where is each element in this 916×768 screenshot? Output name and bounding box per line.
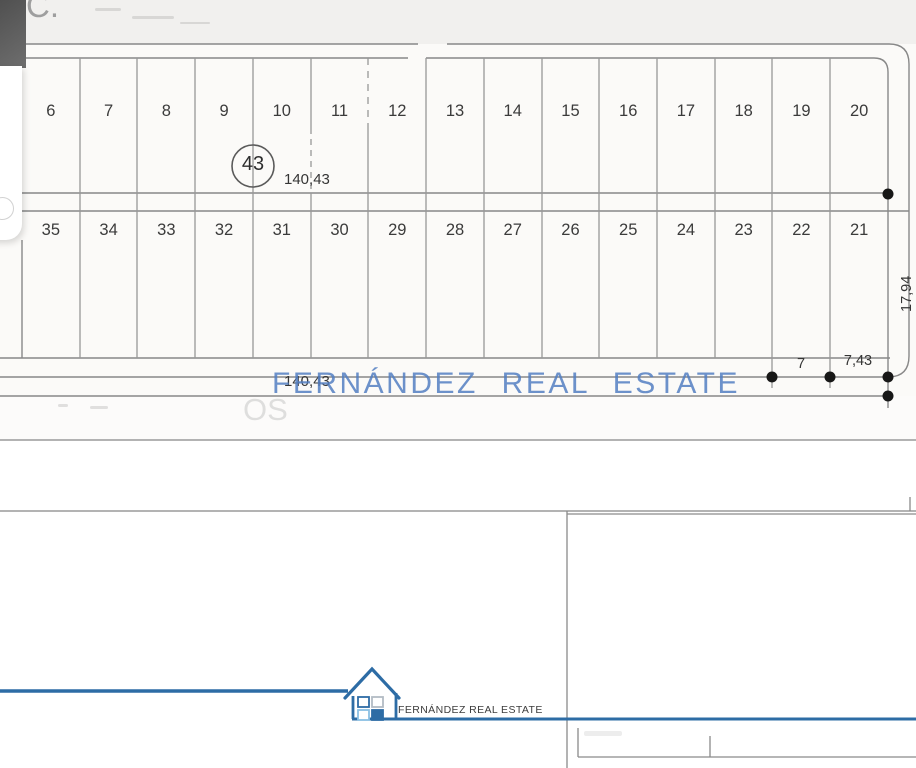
scan-dark-corner bbox=[0, 0, 26, 68]
lot-number: 23 bbox=[715, 221, 773, 240]
lot-number: 32 bbox=[195, 221, 253, 240]
lot-number: 13 bbox=[426, 102, 484, 121]
lot-number: 12 bbox=[368, 102, 426, 121]
brand-label: FERNÁNDEZ REAL ESTATE bbox=[398, 704, 543, 716]
lot-number: 14 bbox=[484, 102, 542, 121]
lot-number: 35 bbox=[22, 221, 80, 240]
lot-number: 16 bbox=[599, 102, 657, 121]
lot-number: 26 bbox=[542, 221, 600, 240]
lot-number: 9 bbox=[195, 102, 253, 121]
lot-number: 31 bbox=[253, 221, 311, 240]
dimension-segment-743: 7,43 bbox=[836, 353, 880, 369]
circle-lot-label: 43 bbox=[239, 153, 267, 176]
lot-number: 15 bbox=[542, 102, 600, 121]
lot-row-bottom: 35 34 33 32 31 30 29 28 27 26 25 24 23 2… bbox=[22, 219, 888, 241]
lot-row-top: 6 7 8 9 10 11 12 13 14 15 16 17 18 19 20 bbox=[22, 100, 888, 122]
lot-number: 8 bbox=[137, 102, 195, 121]
street-band-lines bbox=[0, 440, 916, 511]
corner-note: C. bbox=[26, 0, 59, 25]
lot-number: 20 bbox=[830, 102, 888, 121]
lot-number: 17 bbox=[657, 102, 715, 121]
window-bottom-right bbox=[372, 710, 383, 720]
lot-number: 6 bbox=[22, 102, 80, 121]
lot-number: 30 bbox=[311, 221, 369, 240]
title-block-lines bbox=[567, 497, 916, 768]
window-bottom-left bbox=[358, 710, 369, 720]
window-top-left bbox=[358, 697, 369, 707]
lot-number: 22 bbox=[773, 221, 831, 240]
dimension-top-length: 140,43 bbox=[284, 171, 330, 188]
lot-number: 24 bbox=[657, 221, 715, 240]
scanned-plan-page: C. 6 7 8 9 10 11 12 13 14 15 16 17 18 19… bbox=[0, 0, 916, 768]
dimension-right-depth: 17,94 bbox=[899, 276, 915, 312]
house-logo-icon bbox=[345, 669, 399, 720]
lot-number: 28 bbox=[426, 221, 484, 240]
lot-number: 19 bbox=[773, 102, 831, 121]
dimension-segment-7: 7 bbox=[790, 356, 812, 372]
lot-number: 33 bbox=[137, 221, 195, 240]
lot-number: 25 bbox=[599, 221, 657, 240]
title-block-scribble bbox=[584, 731, 622, 736]
lot-number: 29 bbox=[368, 221, 426, 240]
window-top-right bbox=[372, 697, 383, 707]
erased-mark bbox=[132, 16, 174, 19]
watermark-text: FERNÁNDEZ REAL ESTATE bbox=[272, 367, 740, 401]
lot-number: 21 bbox=[830, 221, 888, 240]
erased-mark bbox=[95, 8, 121, 11]
erased-mark bbox=[90, 406, 108, 409]
lot-number: 27 bbox=[484, 221, 542, 240]
erased-mark bbox=[58, 404, 68, 407]
lot-number: 10 bbox=[253, 102, 311, 121]
lot-number: 7 bbox=[80, 102, 138, 121]
lot-number: 18 bbox=[715, 102, 773, 121]
erased-mark bbox=[180, 22, 210, 24]
lot-number: 11 bbox=[311, 102, 369, 121]
lot-number: 34 bbox=[80, 221, 138, 240]
